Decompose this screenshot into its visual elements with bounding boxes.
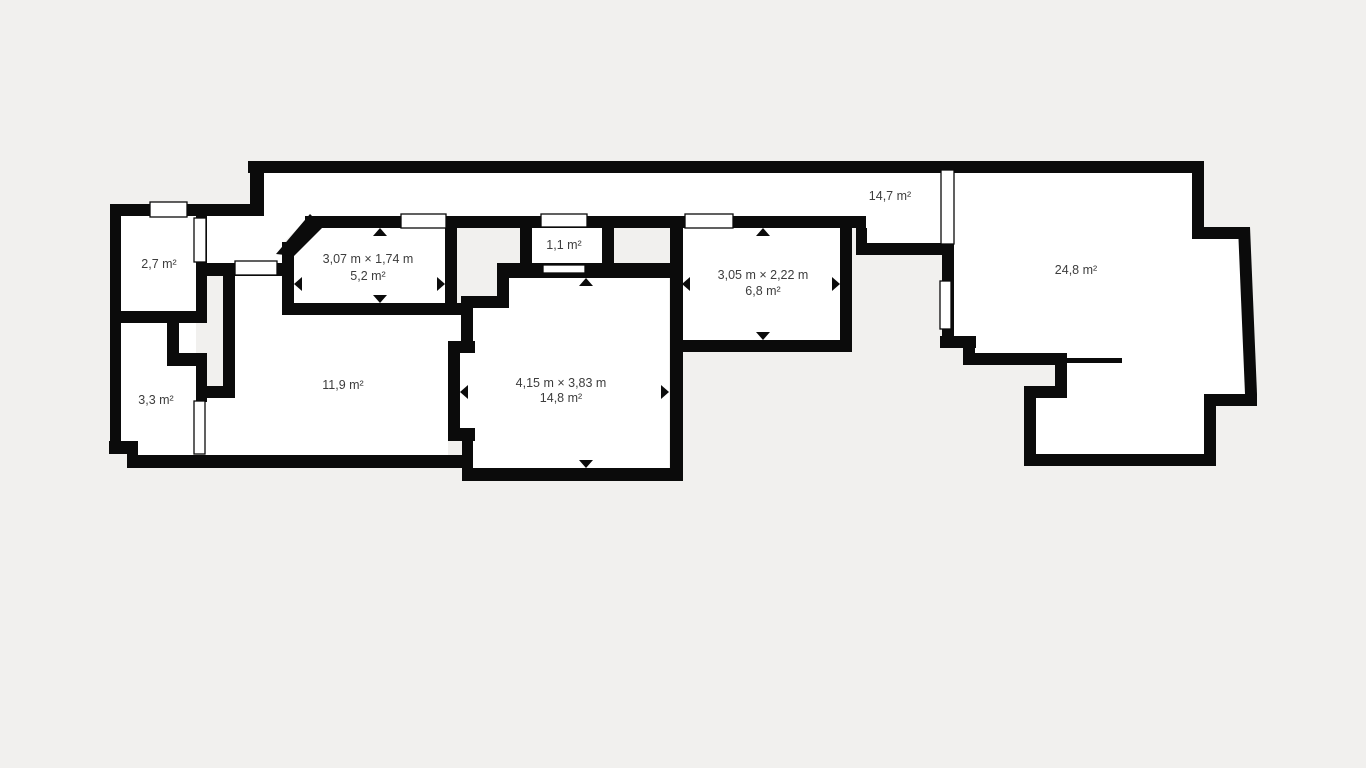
- wall-segment: [445, 216, 457, 315]
- room-6-8-dimensions-label: 3,05 m × 2,22 m: [718, 268, 809, 282]
- room-14-8-area-label: 14,8 m²: [540, 391, 582, 405]
- wall-segment: [602, 228, 614, 268]
- wall-segment: [127, 455, 462, 468]
- wall-segment: [196, 386, 235, 398]
- wall-segment: [856, 243, 944, 255]
- door-room-2-7: [194, 218, 206, 262]
- door-vestibule: [235, 261, 277, 275]
- wall-segment: [167, 311, 179, 360]
- wall-segment: [110, 311, 207, 323]
- wall-segment: [1024, 454, 1216, 466]
- room-11-9-area-label: 11,9 m²: [322, 378, 363, 392]
- room-5-2-area-label: 5,2 m²: [350, 269, 385, 283]
- corridor-14-7-area-label: 14,7 m²: [869, 189, 911, 203]
- room-2-7-area-label: 2,7 m²: [141, 257, 176, 271]
- room-5-2-dimensions-label: 3,07 m × 1,74 m: [323, 252, 414, 266]
- wall-segment: [223, 263, 235, 398]
- wall-segment: [110, 204, 121, 448]
- door-room-3-3: [194, 401, 205, 454]
- wall-segment: [1204, 394, 1257, 406]
- wall-railing-segment: [1063, 358, 1122, 363]
- wall-segment: [282, 303, 473, 315]
- wall-segment: [840, 216, 852, 352]
- wall-segment: [248, 161, 1204, 173]
- door-room-5-2: [401, 214, 446, 228]
- door-room-6-8: [685, 214, 733, 228]
- door-room-1-1-bottom: [543, 265, 585, 273]
- wall-segment: [963, 353, 1067, 365]
- room-6-8-area-label: 6,8 m²: [745, 284, 780, 298]
- wall-segment: [520, 228, 532, 268]
- wall-segment: [1192, 161, 1204, 239]
- room-14-8-dimensions-label: 4,15 m × 3,83 m: [516, 376, 607, 390]
- door-room-24-8: [941, 170, 954, 244]
- wall-segment: [670, 340, 852, 352]
- window-room-2-7: [150, 202, 187, 217]
- room-24-8-area-label: 24,8 m²: [1055, 263, 1097, 277]
- floorplan: 2,7 m² 3,3 m² 11,9 m² 3,07 m × 1,74 m 5,…: [0, 0, 1366, 768]
- room-3-3-area-label: 3,3 m²: [138, 393, 173, 407]
- room-1-1-area-label: 1,1 m²: [546, 238, 581, 252]
- wall-segment: [462, 468, 681, 481]
- wall-segment: [448, 341, 460, 441]
- closet-nook-floor: [179, 323, 196, 353]
- window-room-24-8: [940, 281, 951, 329]
- door-room-1-1-top: [541, 214, 587, 227]
